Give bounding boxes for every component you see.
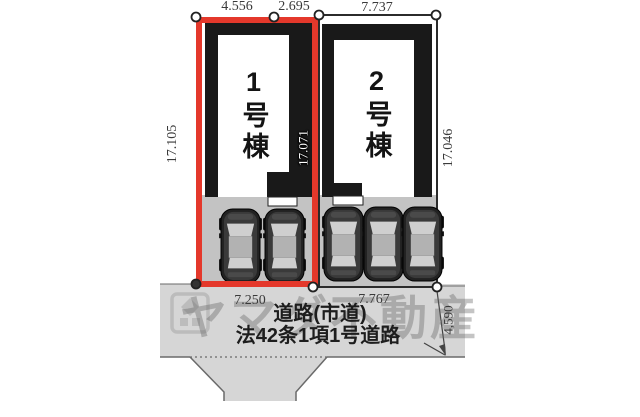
car-1 [219, 209, 262, 283]
car-3 [322, 207, 365, 281]
dim-middle: 17.071 [297, 130, 310, 166]
dim-top-3: 7.737 [361, 1, 393, 15]
building-2-label: 2号棟 [363, 66, 390, 162]
road-label-line2: 法42条1項1号道路 [236, 326, 401, 346]
dim-left: 17.105 [166, 125, 180, 164]
dim-right: 17.046 [442, 129, 456, 168]
road-label-line1: 道路(市道) [273, 304, 366, 324]
dim-top-2: 2.695 [278, 0, 310, 14]
dim-bottom-1: 7.250 [234, 294, 266, 308]
dim-bottom-2: 7.767 [358, 293, 390, 307]
plan-drawing [0, 0, 640, 417]
car-5 [401, 207, 444, 281]
dim-top-1: 4.556 [221, 0, 253, 14]
dim-road-depth: 4,590 [442, 305, 455, 334]
car-4 [362, 207, 405, 281]
building-1-label: 1号棟 [240, 67, 267, 163]
car-2 [263, 209, 306, 283]
site-plan: ヤマダ不動産 道路(市道) 法42条1項1号道路 1号棟 2号棟 4.556 2… [0, 0, 640, 417]
